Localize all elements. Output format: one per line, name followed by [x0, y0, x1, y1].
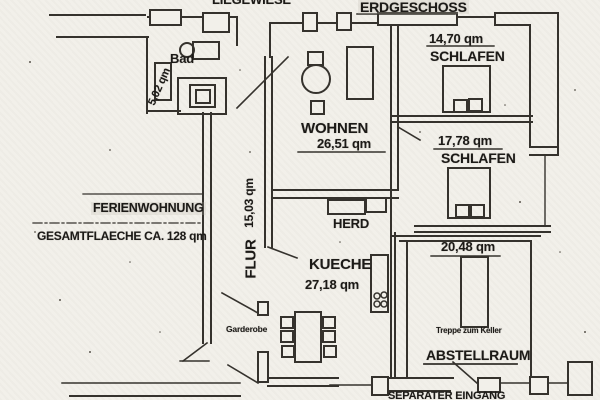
terrace-walls [50, 15, 148, 113]
corridor-name: FLUR [244, 239, 259, 278]
kitchen-name: KUECHE [309, 257, 371, 272]
living-room-area: 26,51 qm [317, 137, 371, 150]
shower-icon [178, 78, 226, 114]
gesamtflaeche-label: GESAMTFLAECHE CA. 128 qm [37, 230, 207, 242]
kitchen-area: 27,18 qm [305, 278, 359, 291]
bedroom2-area: 17,78 qm [438, 134, 492, 147]
cellar-stairs-icon [461, 257, 488, 327]
stove-label: HERD [333, 217, 369, 230]
storeroom-name: ABSTELLRAUM [426, 348, 530, 362]
cooktop-icon [374, 292, 387, 307]
floorplan-drawing [0, 0, 600, 400]
liegewiese-label: LIEGEWIESE [212, 0, 291, 6]
living-room-name: WOHNEN [301, 121, 368, 136]
bedroom1-name: SCHLAFEN [430, 49, 505, 63]
bedroom2-name: SCHLAFEN [441, 151, 516, 165]
bed2-icon [448, 168, 490, 218]
bathroom-name: Bad [170, 52, 194, 65]
bed1-icon [443, 66, 490, 112]
cellar-stairs-label: Treppe zum Keller [436, 327, 502, 335]
wardrobe-doors [222, 293, 268, 383]
floorplan-scan: LIEGEWIESE ERDGESCHOSS 14,70 qm SCHLAFEN… [0, 0, 600, 400]
bathroom-door-swing [237, 57, 288, 108]
ferienwohnung-label: FERIENWOHNUNG [91, 202, 206, 215]
corridor-area: 15,03 qm [243, 178, 255, 228]
erdgeschoss-label: ERDGESCHOSS [358, 0, 469, 14]
bedroom1-area: 14,70 qm [429, 32, 483, 45]
storeroom-area: 20,48 qm [441, 240, 495, 253]
dining-table-icon [281, 312, 336, 362]
entrance-label: SEPARATER EINGANG [388, 391, 505, 400]
wardrobe-label: Garderobe [226, 325, 267, 334]
